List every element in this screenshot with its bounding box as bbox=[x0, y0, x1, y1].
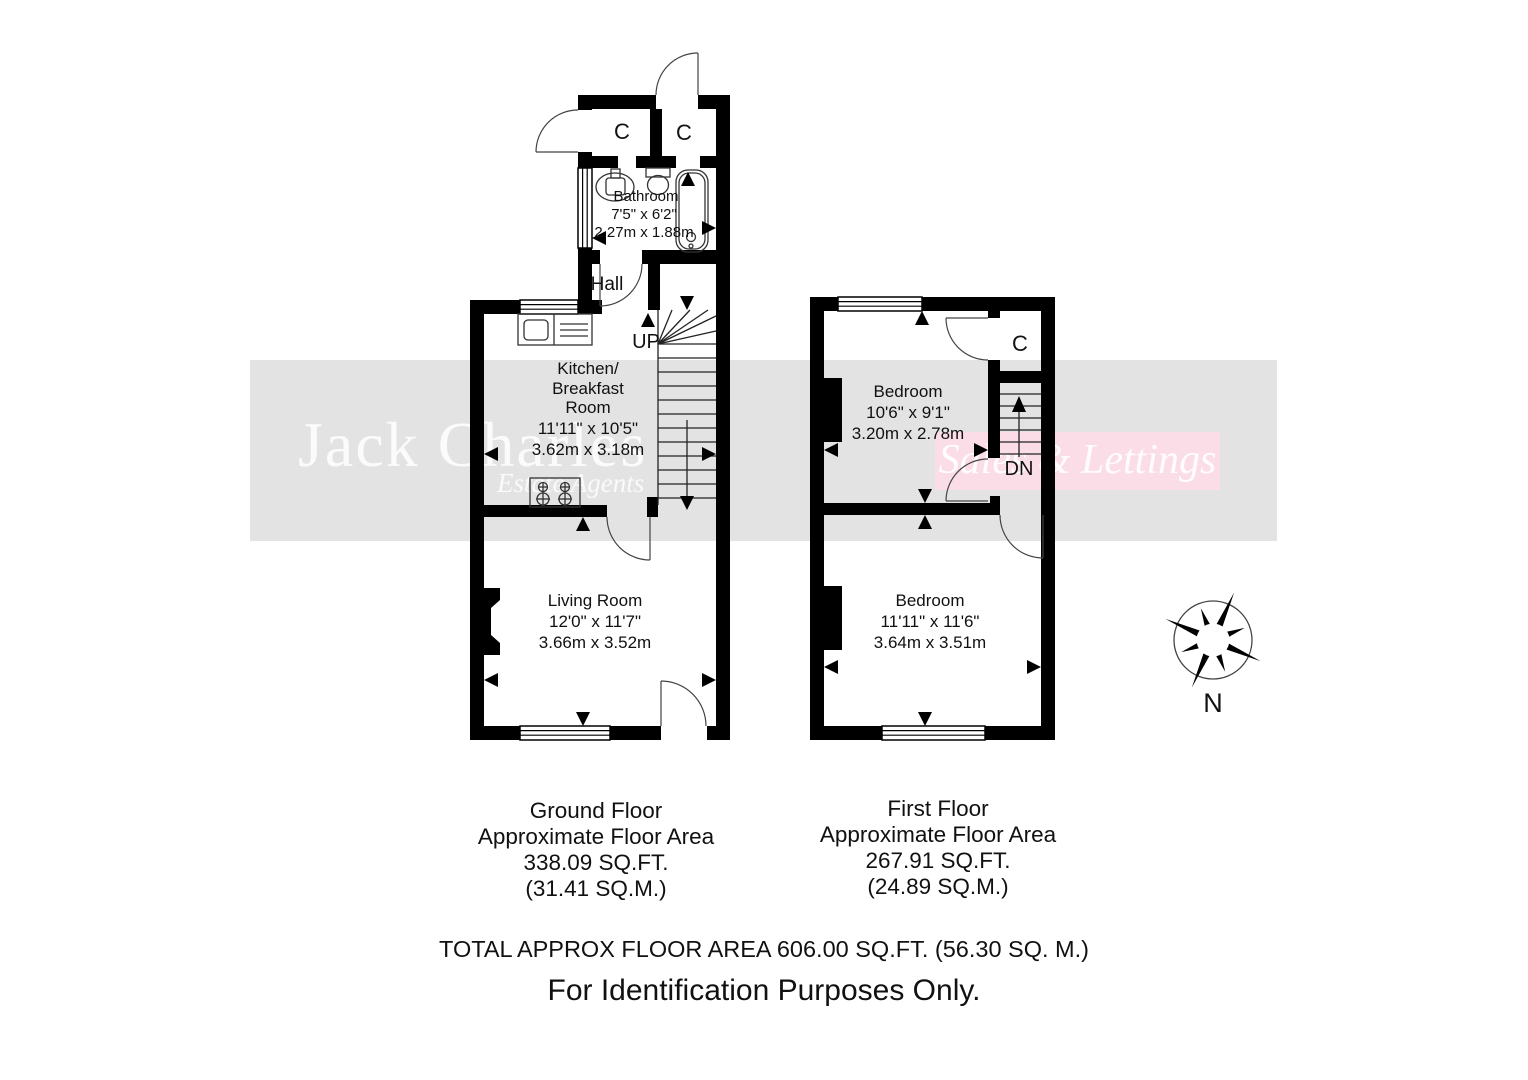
caption-line: 338.09 SQ.FT. bbox=[421, 850, 771, 876]
door-arc bbox=[946, 318, 988, 360]
first-walls bbox=[810, 297, 1055, 740]
bedroom-rear-metric: 3.20m x 2.78m bbox=[852, 424, 964, 443]
caption-line: (31.41 SQ.M.) bbox=[421, 876, 771, 902]
compass-center bbox=[1197, 624, 1230, 657]
bedroom-rear-imperial: 10'6" x 9'1" bbox=[866, 403, 950, 422]
door-arc bbox=[1000, 515, 1043, 558]
first-floor-caption: First Floor Approximate Floor Area 267.9… bbox=[763, 796, 1113, 900]
window bbox=[838, 297, 922, 311]
caption-line: First Floor bbox=[763, 796, 1113, 822]
stove-hob bbox=[530, 478, 580, 507]
caption-line: Ground Floor bbox=[421, 798, 771, 824]
caption-line: Approximate Floor Area bbox=[763, 822, 1113, 848]
kitchen-sink-unit bbox=[518, 314, 592, 345]
closet-label: C bbox=[614, 119, 630, 144]
window bbox=[578, 168, 592, 248]
kitchen-label: Room bbox=[565, 398, 610, 417]
bedroom-front-metric: 3.64m x 3.51m bbox=[874, 633, 986, 652]
staircase-down bbox=[1000, 394, 1041, 457]
caption-line: (24.89 SQ.M.) bbox=[763, 874, 1113, 900]
disclaimer: For Identification Purposes Only. bbox=[0, 974, 1528, 1008]
window bbox=[882, 726, 985, 740]
kitchen-label: Breakfast bbox=[552, 379, 624, 398]
ground-floor-plan: C C Bathroom 7'5" x 6'2" 2.27m x 1.88m H… bbox=[460, 88, 750, 753]
compass-rose: N bbox=[1150, 578, 1280, 723]
living-room-label: Living Room bbox=[548, 591, 643, 610]
staircase-up bbox=[658, 310, 716, 510]
bedroom-rear-label: Bedroom bbox=[874, 382, 943, 401]
door-arc bbox=[536, 110, 578, 152]
closet-label: C bbox=[1012, 331, 1028, 356]
kitchen-metric: 3.62m x 3.18m bbox=[532, 440, 644, 459]
compass-north-label: N bbox=[1203, 688, 1223, 718]
stairs-down-label: DN bbox=[1005, 458, 1034, 480]
bathroom-label: Bathroom bbox=[613, 188, 678, 205]
total-floor-area: TOTAL APPROX FLOOR AREA 606.00 SQ.FT. (5… bbox=[0, 936, 1528, 963]
caption-line: Approximate Floor Area bbox=[421, 824, 771, 850]
window bbox=[520, 726, 610, 740]
bathroom-metric: 2.27m x 1.88m bbox=[594, 224, 693, 241]
door-arc bbox=[656, 53, 698, 95]
first-floor-plan: C Bedroom 10'6" x 9'1" 3.20m x 2.78m DN … bbox=[800, 290, 1070, 755]
living-room-metric: 3.66m x 3.52m bbox=[539, 633, 651, 652]
caption-line: 267.91 SQ.FT. bbox=[763, 848, 1113, 874]
stairs-up-label: UP bbox=[632, 331, 660, 353]
bedroom-front-imperial: 11'11" x 11'6" bbox=[881, 612, 980, 631]
floorplan-page: Jack Charles Estate Agents Sales & Letti… bbox=[0, 0, 1528, 1080]
door-arc bbox=[946, 459, 988, 501]
closet-label: C bbox=[676, 120, 692, 145]
kitchen-label: Kitchen/ bbox=[557, 359, 619, 378]
hall-label: Hall bbox=[591, 274, 624, 295]
living-room-imperial: 12'0" x 11'7" bbox=[549, 612, 641, 631]
ground-floor-caption: Ground Floor Approximate Floor Area 338.… bbox=[421, 798, 771, 902]
front-door-arc bbox=[661, 681, 706, 726]
window bbox=[520, 300, 578, 314]
kitchen-imperial: 11'11" x 10'5" bbox=[538, 419, 638, 438]
fireplace-chimney-breast bbox=[484, 588, 500, 655]
bedroom-front-label: Bedroom bbox=[896, 591, 965, 610]
bathroom-imperial: 7'5" x 6'2" bbox=[611, 206, 677, 223]
door-arc bbox=[607, 517, 650, 560]
